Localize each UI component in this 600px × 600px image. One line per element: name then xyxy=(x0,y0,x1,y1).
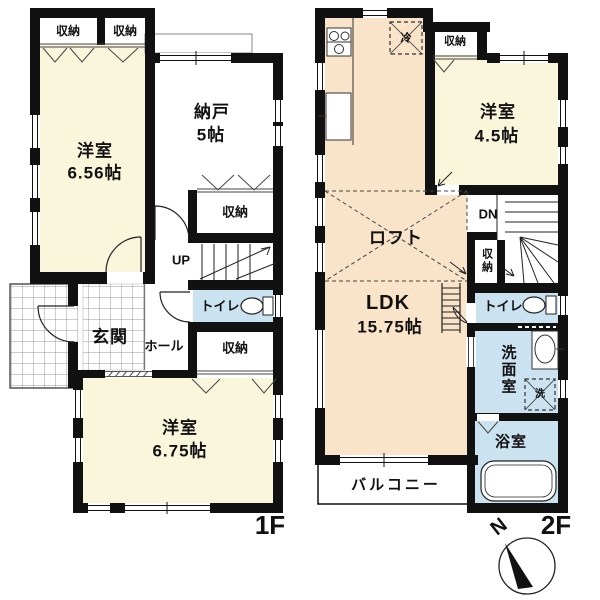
label-toilet-2f: トイレ xyxy=(483,300,522,313)
label-closet-bottom: 収納 xyxy=(222,342,248,355)
label-closet-top-2f: 収納 xyxy=(444,37,466,48)
stairs-up-icon xyxy=(200,244,276,280)
floor1-plan xyxy=(10,8,283,514)
toilet-icon xyxy=(241,297,273,315)
label-ldk: LDK xyxy=(366,293,410,313)
canopy-outline xyxy=(145,34,252,53)
nando-door xyxy=(155,206,189,240)
label-stairs-up: UP xyxy=(172,254,190,267)
label-yoshitsu45-size: 4.5帖 xyxy=(475,128,520,145)
label-ldk-size: 15.75帖 xyxy=(357,319,423,336)
label-closet-mid-1f: 収納 xyxy=(222,206,248,219)
label-floor-2f: 2F xyxy=(541,512,571,538)
label-yoshitsu656: 洋室 xyxy=(77,143,113,160)
porch-tiles xyxy=(10,284,78,388)
label-floor-1f: 1F xyxy=(255,512,285,538)
label-closet-b: 収納 xyxy=(113,25,137,37)
floorplan: 収納 収納 洋室 6.56帖 納戸 5帖 収納 UP トイレ 玄関 ホール 収納… xyxy=(0,0,600,600)
label-stairs-dn: DN xyxy=(479,208,498,221)
floor2-plan xyxy=(315,8,568,513)
label-hall: ホール xyxy=(144,340,183,353)
label-yoshitsu675: 洋室 xyxy=(162,420,198,437)
label-closet-a: 収納 xyxy=(56,25,80,37)
label-washer: 洗 xyxy=(535,390,545,400)
toilet-icon-2f xyxy=(523,296,556,314)
label-balcony: バルコニー xyxy=(351,478,441,493)
toilet-1f-door xyxy=(160,292,190,322)
label-yoshitsu675-size: 6.75帖 xyxy=(152,443,207,460)
sliding-opening-1f xyxy=(105,371,152,377)
room-yoshitsu-675 xyxy=(83,378,273,503)
label-bath: 浴室 xyxy=(495,435,527,450)
label-loft: ロフト xyxy=(369,230,423,247)
label-nando-size: 5帖 xyxy=(197,127,225,144)
label-toilet-1f: トイレ xyxy=(200,300,239,313)
kitchen-sink-icon xyxy=(326,93,351,140)
label-yoshitsu45: 洋室 xyxy=(480,104,516,121)
label-closet-mid-2f: 収納 xyxy=(481,248,492,274)
label-nando: 納戸 xyxy=(194,104,230,121)
bathtub-icon xyxy=(481,461,556,501)
label-genkan: 玄関 xyxy=(92,329,128,346)
label-washroom: 洗面室 xyxy=(501,345,516,396)
stairs-down-icon xyxy=(497,195,558,283)
compass-icon xyxy=(499,538,555,594)
label-fridge: 冷 xyxy=(401,34,412,45)
stove-icon xyxy=(327,28,351,56)
label-yoshitsu656-size: 6.56帖 xyxy=(67,165,122,182)
